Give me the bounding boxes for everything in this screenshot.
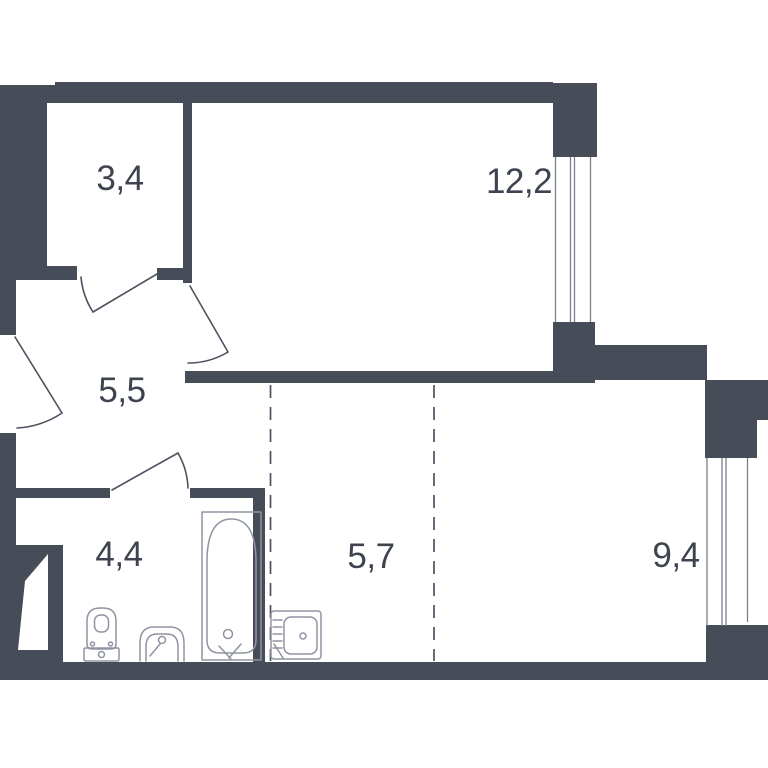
door-leaf [93,274,157,312]
kitchen-sink [271,611,321,659]
wall-segment [705,380,768,420]
wall-segment [553,83,597,157]
sink-faucet [300,633,306,639]
door-leaf [190,286,228,352]
room-area-label: 5,7 [347,537,394,576]
wall-segment [183,103,192,283]
door-bathroom [112,453,188,490]
room-area-label: 4,4 [95,535,142,574]
toilet [84,608,119,661]
window-bedroom [556,157,591,322]
wall-segment [55,82,553,103]
basin-faucet [159,637,166,644]
wall-segment [553,322,595,383]
wall-segment [705,420,757,458]
wall-segment [0,85,47,280]
sink-lever [274,644,283,658]
door-leaf [112,453,178,490]
bathtub [202,512,261,660]
door-swing-arc [81,277,93,312]
door-leaf [15,337,62,413]
wall-segment [190,488,265,498]
door-room-1 [81,274,157,312]
bathtub-inner [207,519,256,653]
toilet-tank [84,648,119,661]
toilet-seat [95,615,109,632]
basin-lever [150,644,160,656]
wall-segment [253,498,265,662]
wall-segment [15,488,110,498]
room-area-label: 12,2 [486,162,552,201]
bathtub-faucet [229,644,241,658]
door-bedroom [188,286,228,363]
washbasin [140,627,184,661]
toilet-hinge [109,642,113,646]
room-area-label: 9,4 [652,536,699,575]
basin-inner [146,634,178,661]
room-area-label: 3,4 [96,159,143,198]
toilet-button [99,652,105,658]
window-living [707,458,748,626]
toilet-hinge [91,642,95,646]
wall-segment [15,266,77,280]
wall-segment [0,280,16,335]
wall-segment [595,345,707,380]
floor-plan: 3,4 12,2 5,5 4,4 5,7 9,4 [0,0,768,768]
door-swing-arc [178,453,188,488]
door-swing-arc [17,413,62,428]
wall-segment [0,662,768,680]
room-area-label: 5,5 [98,371,145,410]
wall-segment [185,371,553,383]
door-swing-arc [188,352,228,363]
floor-plan-drawing: 3,4 12,2 5,5 4,4 5,7 9,4 [0,0,768,768]
wall-segment [0,433,16,680]
bathtub-drain [224,630,233,639]
door-entrance [15,337,62,428]
